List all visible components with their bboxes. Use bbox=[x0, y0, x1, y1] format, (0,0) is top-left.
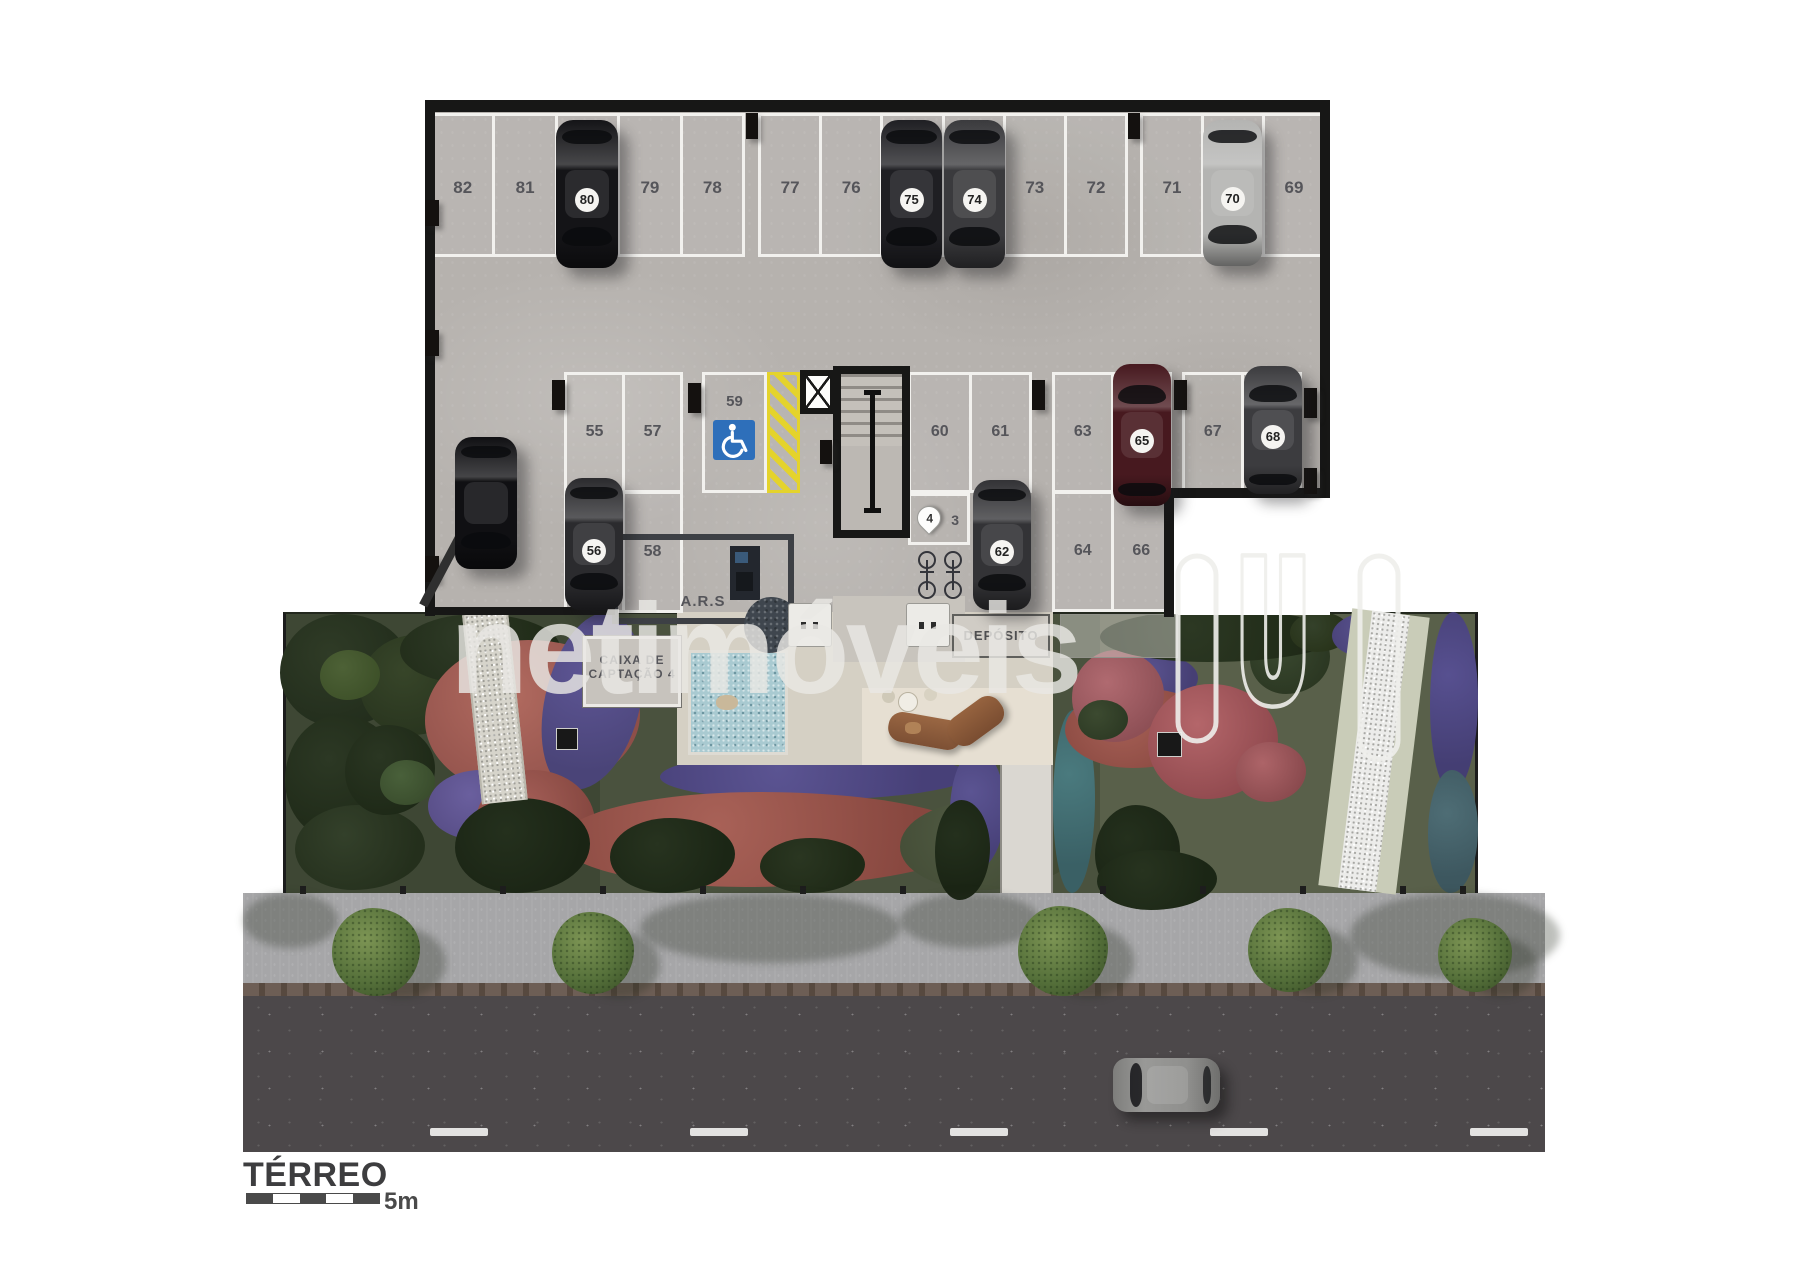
stall-number: 81 bbox=[495, 178, 554, 198]
stall-number: 64 bbox=[1055, 542, 1111, 560]
boundary-post bbox=[700, 886, 706, 894]
elevator-x-icon bbox=[806, 376, 830, 408]
parking-stall: 60 bbox=[911, 375, 969, 490]
parking-stall: 55 bbox=[567, 375, 622, 490]
stair-handrail-cap bbox=[864, 508, 881, 513]
parking-stall: 67 bbox=[1185, 375, 1241, 490]
car-window bbox=[949, 130, 999, 143]
garage-wall bbox=[425, 100, 435, 616]
stall-number: 59 bbox=[705, 393, 764, 410]
boundary-post bbox=[500, 886, 506, 894]
car-window bbox=[949, 227, 999, 246]
car-window bbox=[461, 532, 512, 549]
car-window bbox=[886, 227, 936, 246]
car-stall-badge: 62 bbox=[990, 540, 1014, 564]
car-windshield bbox=[1130, 1063, 1142, 1107]
stall-number: 69 bbox=[1265, 178, 1323, 198]
netimoveis-n-logo bbox=[1172, 550, 1404, 765]
curb bbox=[243, 983, 1545, 996]
boundary-post bbox=[1100, 886, 1106, 894]
garage-pillar bbox=[746, 113, 758, 139]
garage-pillar bbox=[425, 330, 439, 356]
palm-frond-shadow bbox=[243, 893, 338, 948]
parking-stall: 76 bbox=[819, 116, 880, 254]
boundary-post bbox=[600, 886, 606, 894]
parking-stall: 79 bbox=[617, 116, 679, 254]
parking-stall: 82 bbox=[433, 116, 492, 254]
parking-stall: 73 bbox=[1003, 116, 1064, 254]
stall-number: 67 bbox=[1185, 423, 1241, 441]
parking-stall: 66 bbox=[1111, 494, 1170, 609]
car-window bbox=[1249, 474, 1297, 486]
square-planter bbox=[556, 728, 578, 750]
stall-number: 66 bbox=[1114, 542, 1170, 560]
car-window bbox=[1208, 225, 1256, 244]
car-stall-74: 74 bbox=[944, 120, 1005, 268]
stall-number: 79 bbox=[620, 178, 679, 198]
stall-number: 76 bbox=[822, 178, 880, 198]
stall-number: 57 bbox=[625, 423, 680, 441]
marker-cells: 4 3 bbox=[908, 493, 970, 545]
car-stall-65: 65 bbox=[1113, 364, 1171, 506]
boundary-post bbox=[1200, 886, 1206, 894]
car-window bbox=[562, 227, 613, 246]
car-window bbox=[1118, 483, 1166, 496]
staircase bbox=[833, 366, 910, 538]
sofa-pillow bbox=[905, 722, 921, 734]
scale-segment bbox=[300, 1194, 326, 1203]
car-stall-70: 70 bbox=[1203, 120, 1262, 266]
location-pin-icon: 4 bbox=[912, 501, 946, 535]
lane-marking-dash bbox=[690, 1128, 748, 1136]
scale-bar bbox=[246, 1193, 380, 1204]
lane-marking-dash bbox=[430, 1128, 488, 1136]
ground-floor-plan: 59 A.R.S 4 3 bbox=[0, 0, 1800, 1271]
car-stall-aisle bbox=[455, 437, 517, 569]
scale-value: 5m bbox=[384, 1188, 419, 1216]
parking-stall: 69 bbox=[1262, 116, 1323, 254]
garage-pillar bbox=[1304, 388, 1317, 418]
stall-number: 82 bbox=[433, 178, 492, 198]
stall-number: 60 bbox=[911, 423, 969, 441]
car-window bbox=[1118, 385, 1166, 403]
parking-stall-group: 6061 bbox=[908, 372, 1032, 493]
scale-segment bbox=[353, 1194, 379, 1203]
garage-pillar bbox=[552, 380, 565, 410]
boundary-post bbox=[900, 886, 906, 894]
parking-stall-group: 5557 bbox=[564, 372, 683, 493]
watermark-netimoveis: netimóveis bbox=[450, 576, 1079, 723]
car-stall-80: 80 bbox=[556, 120, 618, 268]
car-roof bbox=[1147, 1066, 1188, 1105]
stair-handrail bbox=[870, 393, 875, 512]
scale-segment bbox=[273, 1194, 299, 1203]
lane-marking-dash bbox=[1470, 1128, 1528, 1136]
car-stall-badge: 68 bbox=[1261, 425, 1285, 449]
car-street bbox=[1113, 1058, 1220, 1112]
car-stall-badge: 56 bbox=[582, 539, 606, 563]
car-stall-68: 68 bbox=[1244, 366, 1302, 494]
stall-number: 73 bbox=[1006, 178, 1064, 198]
car-stall-badge: 75 bbox=[900, 188, 924, 212]
car-roof bbox=[464, 482, 509, 524]
parking-stall: 71 bbox=[1143, 116, 1201, 254]
stall-number: 61 bbox=[972, 423, 1030, 441]
car-window bbox=[978, 489, 1026, 501]
floor-title: TÉRREO bbox=[243, 1156, 388, 1195]
boundary-post bbox=[1300, 886, 1306, 894]
garage-pillar bbox=[1128, 113, 1140, 139]
garage-pillar bbox=[688, 383, 701, 413]
elevator bbox=[800, 370, 836, 414]
lane-marking-dash bbox=[950, 1128, 1008, 1136]
stall-number: 72 bbox=[1067, 178, 1125, 198]
parking-stall: 72 bbox=[1064, 116, 1125, 254]
boundary-post bbox=[1400, 886, 1406, 894]
car-stall-badge: 70 bbox=[1221, 187, 1245, 211]
cell-number: 3 bbox=[951, 512, 960, 528]
car-window bbox=[1208, 130, 1256, 143]
stall-number: 71 bbox=[1143, 178, 1201, 198]
garage-wall bbox=[425, 100, 1330, 112]
car-window bbox=[570, 487, 618, 499]
stall-number: 77 bbox=[761, 178, 819, 198]
parking-stall: 63 bbox=[1055, 375, 1111, 490]
garage-pillar bbox=[1174, 380, 1187, 410]
garage-pillar bbox=[1304, 468, 1317, 494]
parking-stall: 57 bbox=[622, 375, 680, 490]
parking-stall: 61 bbox=[969, 375, 1030, 490]
car-stall-75: 75 bbox=[881, 120, 942, 268]
parking-stall-group: 777675747372 bbox=[758, 113, 1128, 257]
lane-marking-dash bbox=[1210, 1128, 1268, 1136]
car-stall-badge: 74 bbox=[963, 188, 987, 212]
boundary-post bbox=[400, 886, 406, 894]
road bbox=[243, 996, 1545, 1152]
car-rear-window bbox=[1203, 1066, 1212, 1105]
stall-number: 78 bbox=[683, 178, 742, 198]
car-window bbox=[1249, 385, 1297, 402]
palm-frond-shadow bbox=[640, 893, 900, 963]
accessible-stall: 59 bbox=[702, 372, 767, 493]
stored-item bbox=[735, 552, 748, 563]
boundary-post bbox=[800, 886, 806, 894]
scale-segment bbox=[247, 1194, 273, 1203]
car-window bbox=[562, 130, 613, 143]
scale-segment bbox=[326, 1194, 352, 1203]
car-stall-badge: 80 bbox=[575, 188, 599, 212]
car-window bbox=[461, 446, 512, 458]
wheelchair-accessible-icon bbox=[713, 420, 755, 460]
stair-handrail-cap bbox=[864, 390, 881, 395]
garage-pillar bbox=[1032, 380, 1045, 410]
car-window bbox=[886, 130, 936, 143]
stall-number: 63 bbox=[1055, 423, 1111, 441]
garage-wall bbox=[1320, 100, 1330, 497]
pin-number: 4 bbox=[919, 507, 941, 531]
garage-pillar bbox=[425, 200, 439, 226]
stall-number: 55 bbox=[567, 423, 622, 441]
parking-stall: 78 bbox=[680, 116, 742, 254]
hatched-no-parking-zone bbox=[767, 372, 800, 493]
parking-stall: 81 bbox=[492, 116, 554, 254]
garage-pillar bbox=[820, 440, 832, 464]
parking-stall: 77 bbox=[761, 116, 819, 254]
